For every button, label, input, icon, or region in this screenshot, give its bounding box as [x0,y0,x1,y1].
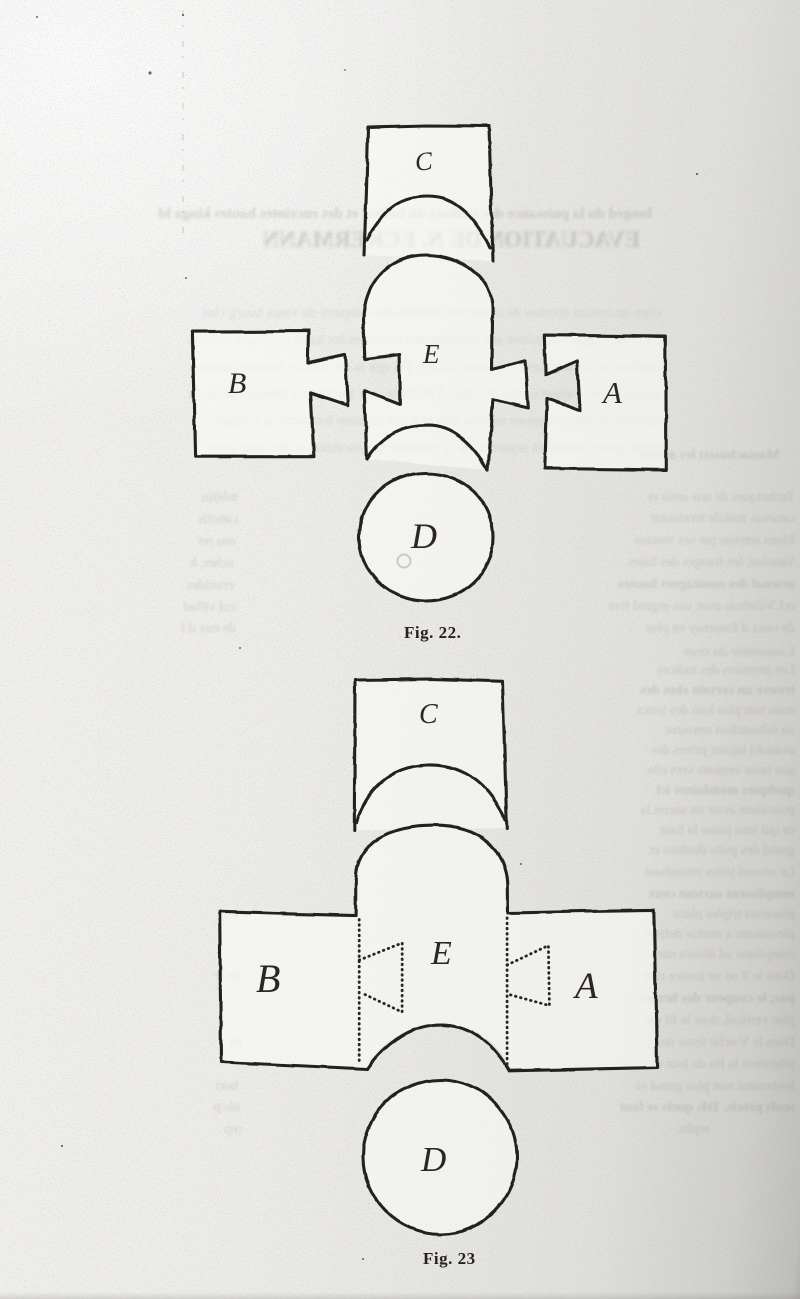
svg-text:E: E [422,339,440,369]
svg-text:C: C [419,699,438,730]
svg-text:E: E [430,935,452,972]
svg-text:A: A [601,375,623,410]
svg-text:B: B [256,956,280,1001]
svg-text:Fig. 22.: Fig. 22. [404,623,461,642]
svg-text:B: B [228,367,246,400]
svg-text:A: A [572,966,598,1007]
svg-text:D: D [420,1140,446,1179]
svg-text:Fig. 23: Fig. 23 [423,1249,476,1268]
svg-text:D: D [410,516,437,556]
